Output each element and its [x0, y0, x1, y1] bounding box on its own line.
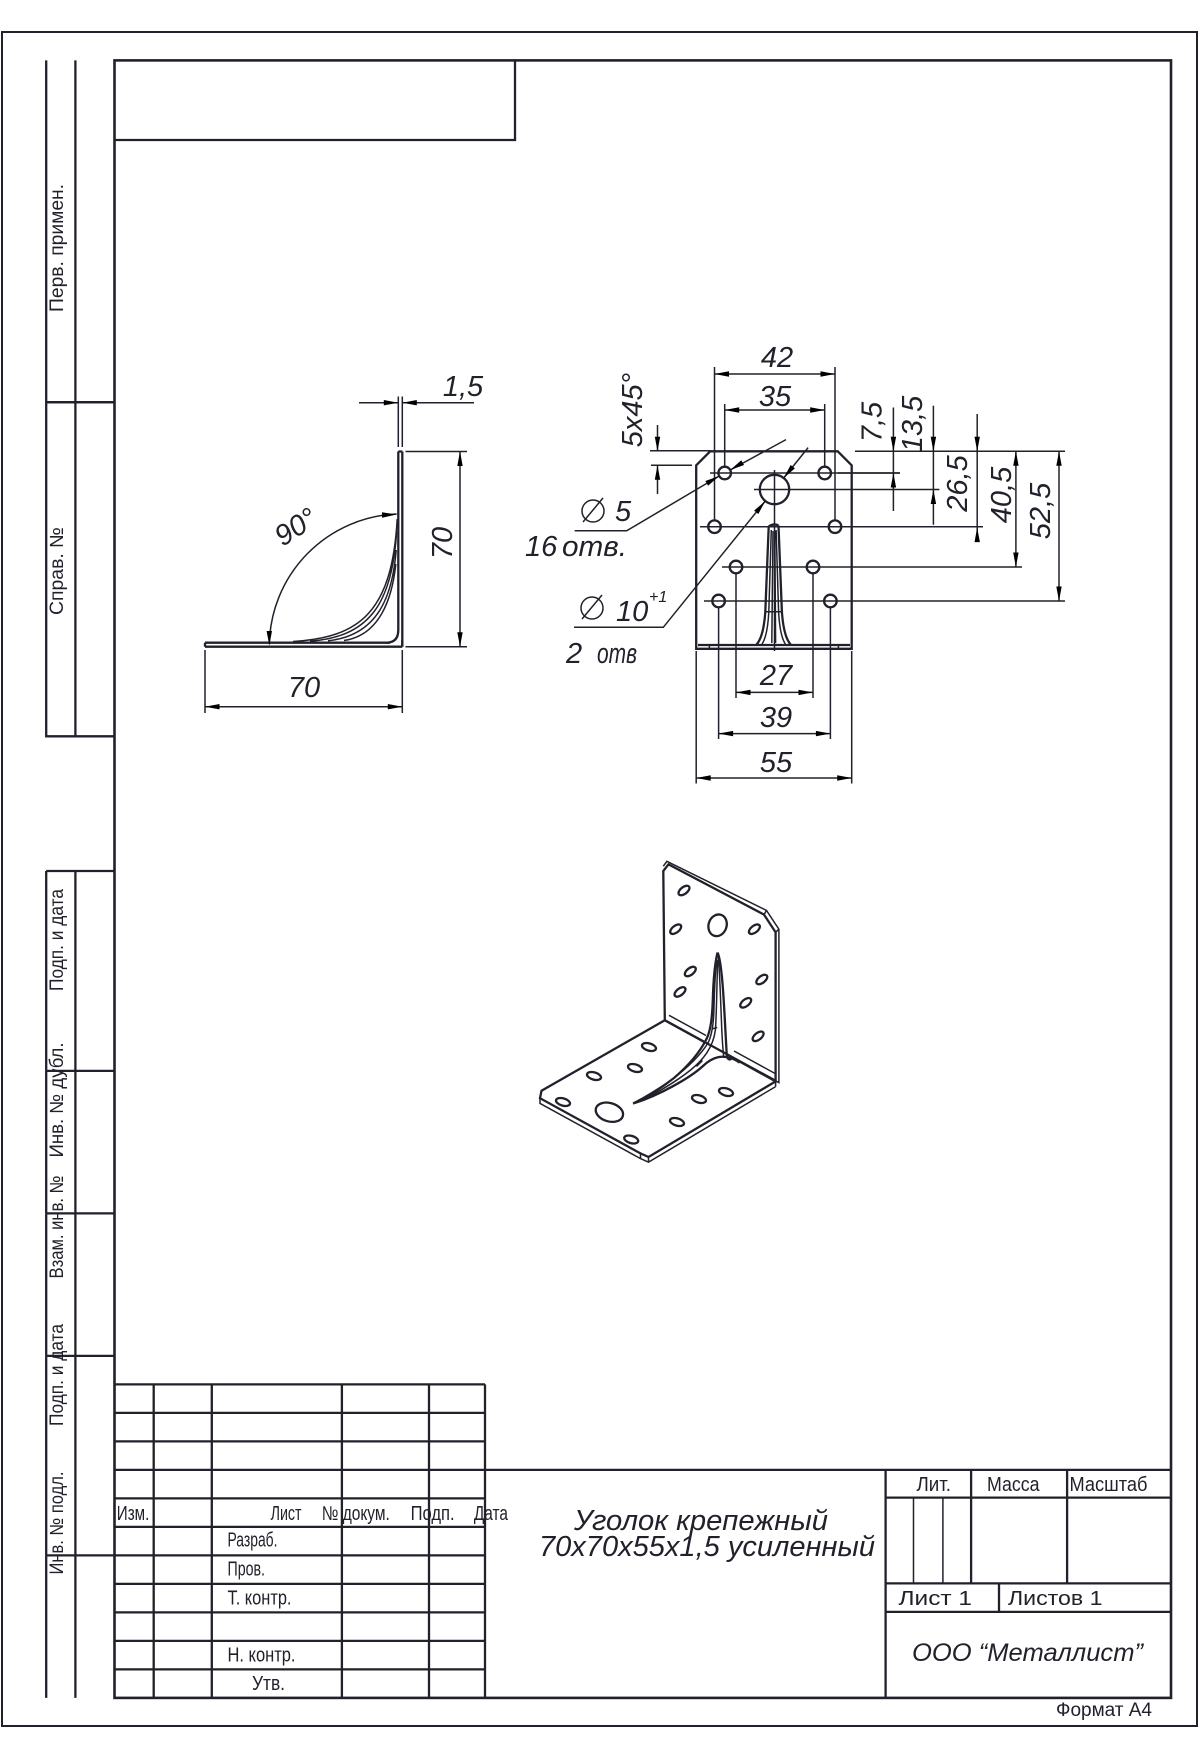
svg-text:№ докум.: № докум. — [322, 1503, 390, 1525]
svg-text:10: 10 — [616, 596, 648, 628]
svg-text:27: 27 — [759, 660, 794, 692]
svg-text:70: 70 — [288, 672, 320, 704]
svg-text:Дата: Дата — [474, 1503, 509, 1525]
svg-text:Взам. инв. №: Взам. инв. № — [47, 1176, 68, 1279]
svg-text:Пров.: Пров. — [228, 1559, 266, 1581]
svg-text:Лит.: Лит. — [917, 1474, 952, 1496]
svg-text:Изм.: Изм. — [117, 1503, 150, 1525]
svg-text:Справ. №: Справ. № — [47, 527, 68, 615]
svg-text:отв: отв — [597, 638, 637, 670]
svg-text:16: 16 — [525, 531, 558, 563]
svg-text:40,5: 40,5 — [986, 466, 1018, 523]
svg-text:13,5: 13,5 — [897, 395, 929, 452]
svg-text:35: 35 — [759, 381, 792, 413]
svg-text:ООО “Металлист”: ООО “Металлист” — [912, 1639, 1145, 1667]
svg-text:5х45°: 5х45° — [617, 373, 649, 447]
svg-text:Масштаб: Масштаб — [1070, 1474, 1148, 1496]
svg-text:1,5: 1,5 — [443, 371, 484, 403]
svg-text:5: 5 — [615, 496, 632, 528]
svg-text:Подп. и дата: Подп. и дата — [47, 889, 68, 991]
svg-text:70: 70 — [427, 527, 459, 559]
svg-text:отв.: отв. — [562, 531, 627, 563]
svg-text:55: 55 — [760, 747, 793, 779]
svg-text:70х70х55х1,5 усиленный: 70х70х55х1,5 усиленный — [539, 1531, 875, 1563]
svg-text:Лист 1: Лист 1 — [899, 1588, 973, 1610]
svg-text:Перв. примен.: Перв. примен. — [47, 184, 68, 312]
svg-text:Инв. № дубл.: Инв. № дубл. — [47, 1043, 68, 1158]
svg-text:Утв.: Утв. — [252, 1673, 285, 1695]
svg-text:Листов 1: Листов 1 — [1008, 1588, 1103, 1610]
svg-text:+1: +1 — [649, 589, 667, 606]
svg-text:2: 2 — [565, 638, 582, 670]
svg-text:Разраб.: Разраб. — [228, 1530, 278, 1552]
svg-text:Лист: Лист — [271, 1503, 302, 1525]
svg-text:Н. контр.: Н. контр. — [228, 1645, 296, 1667]
svg-text:42: 42 — [761, 342, 793, 374]
svg-text:Формат А4: Формат А4 — [1056, 1700, 1152, 1721]
svg-text:26,5: 26,5 — [942, 454, 974, 512]
svg-text:Масса: Масса — [987, 1474, 1040, 1496]
svg-text:52,5: 52,5 — [1025, 482, 1057, 539]
svg-text:7,5: 7,5 — [857, 401, 889, 442]
svg-text:Т. контр.: Т. контр. — [228, 1587, 292, 1609]
svg-text:Подп.: Подп. — [411, 1503, 455, 1525]
svg-text:Инв. № подл.: Инв. № подл. — [47, 1472, 68, 1575]
svg-text:Подп. и дата: Подп. и дата — [47, 1324, 68, 1426]
svg-text:39: 39 — [760, 702, 792, 734]
